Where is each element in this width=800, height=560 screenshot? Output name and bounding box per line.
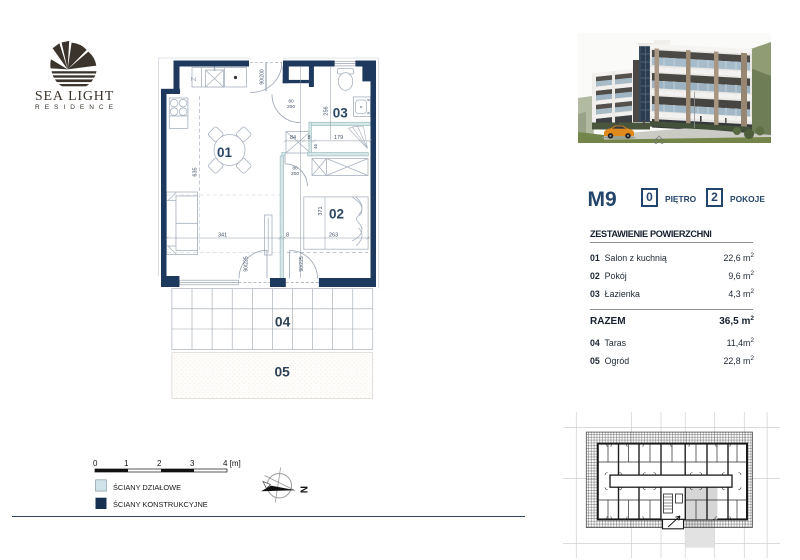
svg-text:80: 80 <box>288 99 294 105</box>
svg-text:90/200: 90/200 <box>260 69 266 85</box>
svg-text:01: 01 <box>217 145 233 160</box>
svg-text:84: 84 <box>290 135 296 141</box>
svg-text:256: 256 <box>324 106 330 115</box>
svg-text:46: 46 <box>313 144 318 150</box>
svg-text:03: 03 <box>333 105 349 120</box>
svg-text:90/225: 90/225 <box>244 256 250 272</box>
svg-text:80: 80 <box>292 166 298 172</box>
svg-text:04: 04 <box>275 315 291 330</box>
svg-text:05: 05 <box>275 365 291 380</box>
svg-text:371: 371 <box>318 206 324 215</box>
svg-text:263: 263 <box>329 232 338 238</box>
svg-text:Z: Z <box>189 76 198 81</box>
svg-text:635: 635 <box>193 167 199 176</box>
svg-text:N: N <box>298 486 309 493</box>
svg-text:341: 341 <box>218 232 227 238</box>
svg-text:179: 179 <box>334 135 343 141</box>
svg-text:8: 8 <box>308 135 311 141</box>
svg-text:200: 200 <box>287 104 295 110</box>
svg-text:02: 02 <box>329 206 344 221</box>
svg-text:200: 200 <box>291 171 299 177</box>
svg-text:8: 8 <box>286 232 289 238</box>
svg-text:90/225: 90/225 <box>299 256 305 272</box>
